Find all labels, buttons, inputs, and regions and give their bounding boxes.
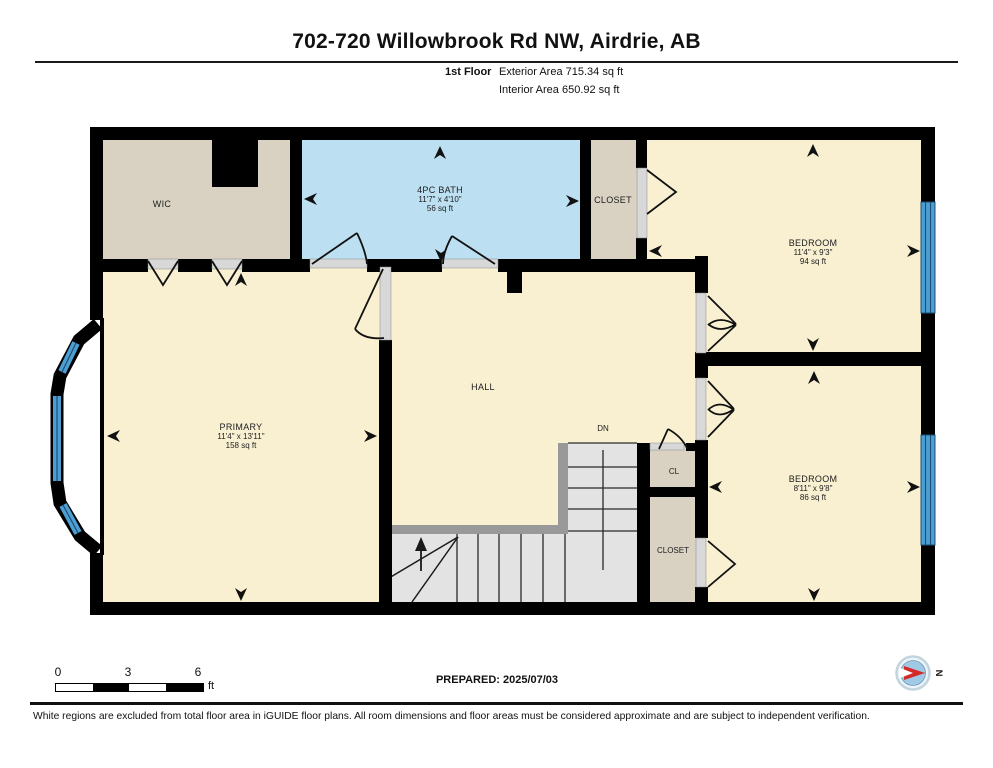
wall-hall-bedrooms-4 [695,587,708,602]
wall-outer-right-1 [921,127,935,202]
wall-h1-a [96,259,148,272]
scale-unit-label: ft [208,680,214,692]
wall-outer-bottom [90,602,935,615]
room-wic [96,133,294,265]
wall-h1-e [498,259,708,272]
scale-tick-3: 3 [120,665,136,679]
room-label-closet-bottom: CLOSET [657,546,689,555]
stairs-down-label: DN [597,424,609,433]
wall-closet-bedroom-upper [636,133,647,168]
room-label-cl: CL [669,467,680,476]
wall-bedroom-divider [695,352,922,366]
floorplan-canvas: WIC 4PC BATH 11'7" x 4'10" 56 sq ft CLOS… [0,0,993,768]
wall-outer-left-upper [90,127,103,320]
room-label-primary-dims: 11'4" x 13'11" [217,432,264,441]
bay-wall-outline [57,324,98,551]
wall-primary-hall [379,340,392,602]
room-label-bedroom-top-dims: 11'4" x 9'3" [794,248,833,257]
room-label-wic: WIC [153,199,172,209]
room-label-bedroom-top-area: 94 sq ft [800,257,827,266]
room-label-bath-name: 4PC BATH [417,185,463,195]
wall-wic-bath [290,133,302,265]
stair-rail-vertical [558,443,568,525]
wall-h1-b [178,259,212,272]
wall-h1-d [367,259,442,272]
scale-bar [55,683,204,692]
wall-h1-c [242,259,310,272]
wall-outer-right-3 [921,545,935,615]
room-label-bedroom-top-name: BEDROOM [789,238,838,248]
scale-tick-0: 0 [50,665,66,679]
compass-north-label: N [933,670,944,677]
room-label-bath-area: 56 sq ft [427,204,454,213]
room-label-bedroom-bottom-name: BEDROOM [789,474,838,484]
wall-cl-top-stub [686,443,708,451]
room-label-primary-area: 158 sq ft [226,441,257,450]
room-label-bath-dims: 11'7" x 4'10" [418,195,461,204]
wall-hall-stub [507,272,522,293]
wall-bath-closet [580,133,591,265]
stair-rail-horizontal [392,525,568,534]
bay-window [57,324,98,551]
room-label-hall: HALL [471,382,495,392]
room-label-primary-name: PRIMARY [220,422,263,432]
window-bedroom-top [921,202,935,313]
compass-icon: N [897,657,945,690]
wall-outer-right-2 [921,313,935,435]
prepared-date-label: PREPARED: 2025/07/03 [347,674,647,686]
window-bedroom-bottom [921,435,935,545]
scale-segment [93,684,130,691]
wall-bay-plane [100,318,104,555]
room-label-closet-top: CLOSET [594,195,632,205]
footer-divider [30,702,963,705]
scale-tick-6: 6 [190,665,206,679]
scale-segment [166,684,203,691]
footer-disclaimer: White regions are excluded from total fl… [33,711,963,722]
room-label-bedroom-bottom-area: 86 sq ft [800,493,827,502]
wall-hall-bedrooms-1 [695,256,708,293]
stair-lower-run [390,534,568,602]
wall-stair-closet [637,443,650,602]
room-label-bedroom-bottom-dims: 8'11" x 9'8" [794,484,833,493]
wall-cl-closet-divider [645,487,708,497]
wall-outer-left-lower [90,553,103,615]
wall-notch-wic [212,133,258,187]
